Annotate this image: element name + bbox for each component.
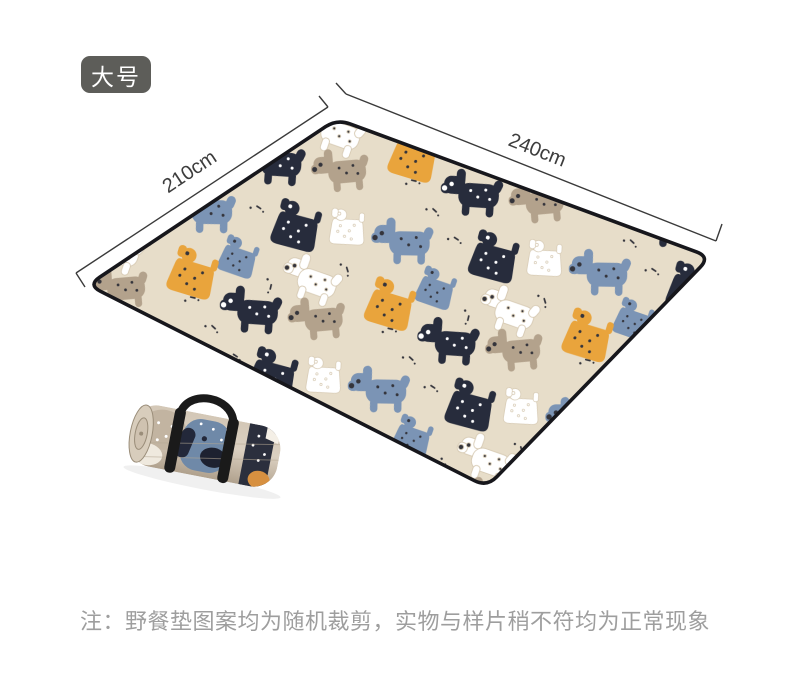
product-detail-page: 大号 [0, 0, 790, 688]
note-text: 注：野餐垫图案均为随机裁剪，实物与样片稍不符均为正常现象 [0, 607, 790, 637]
dimension-tick [76, 273, 85, 287]
rolled-mat-illustration [122, 385, 296, 504]
dimension-label-240cm: 240cm [505, 129, 569, 171]
product-figure: 240cm 210cm [0, 0, 790, 688]
dimension-label-210cm: 210cm [159, 146, 221, 197]
dimension-tick [336, 83, 346, 94]
dimension-tick [716, 224, 722, 241]
dimension-tick [319, 96, 328, 107]
